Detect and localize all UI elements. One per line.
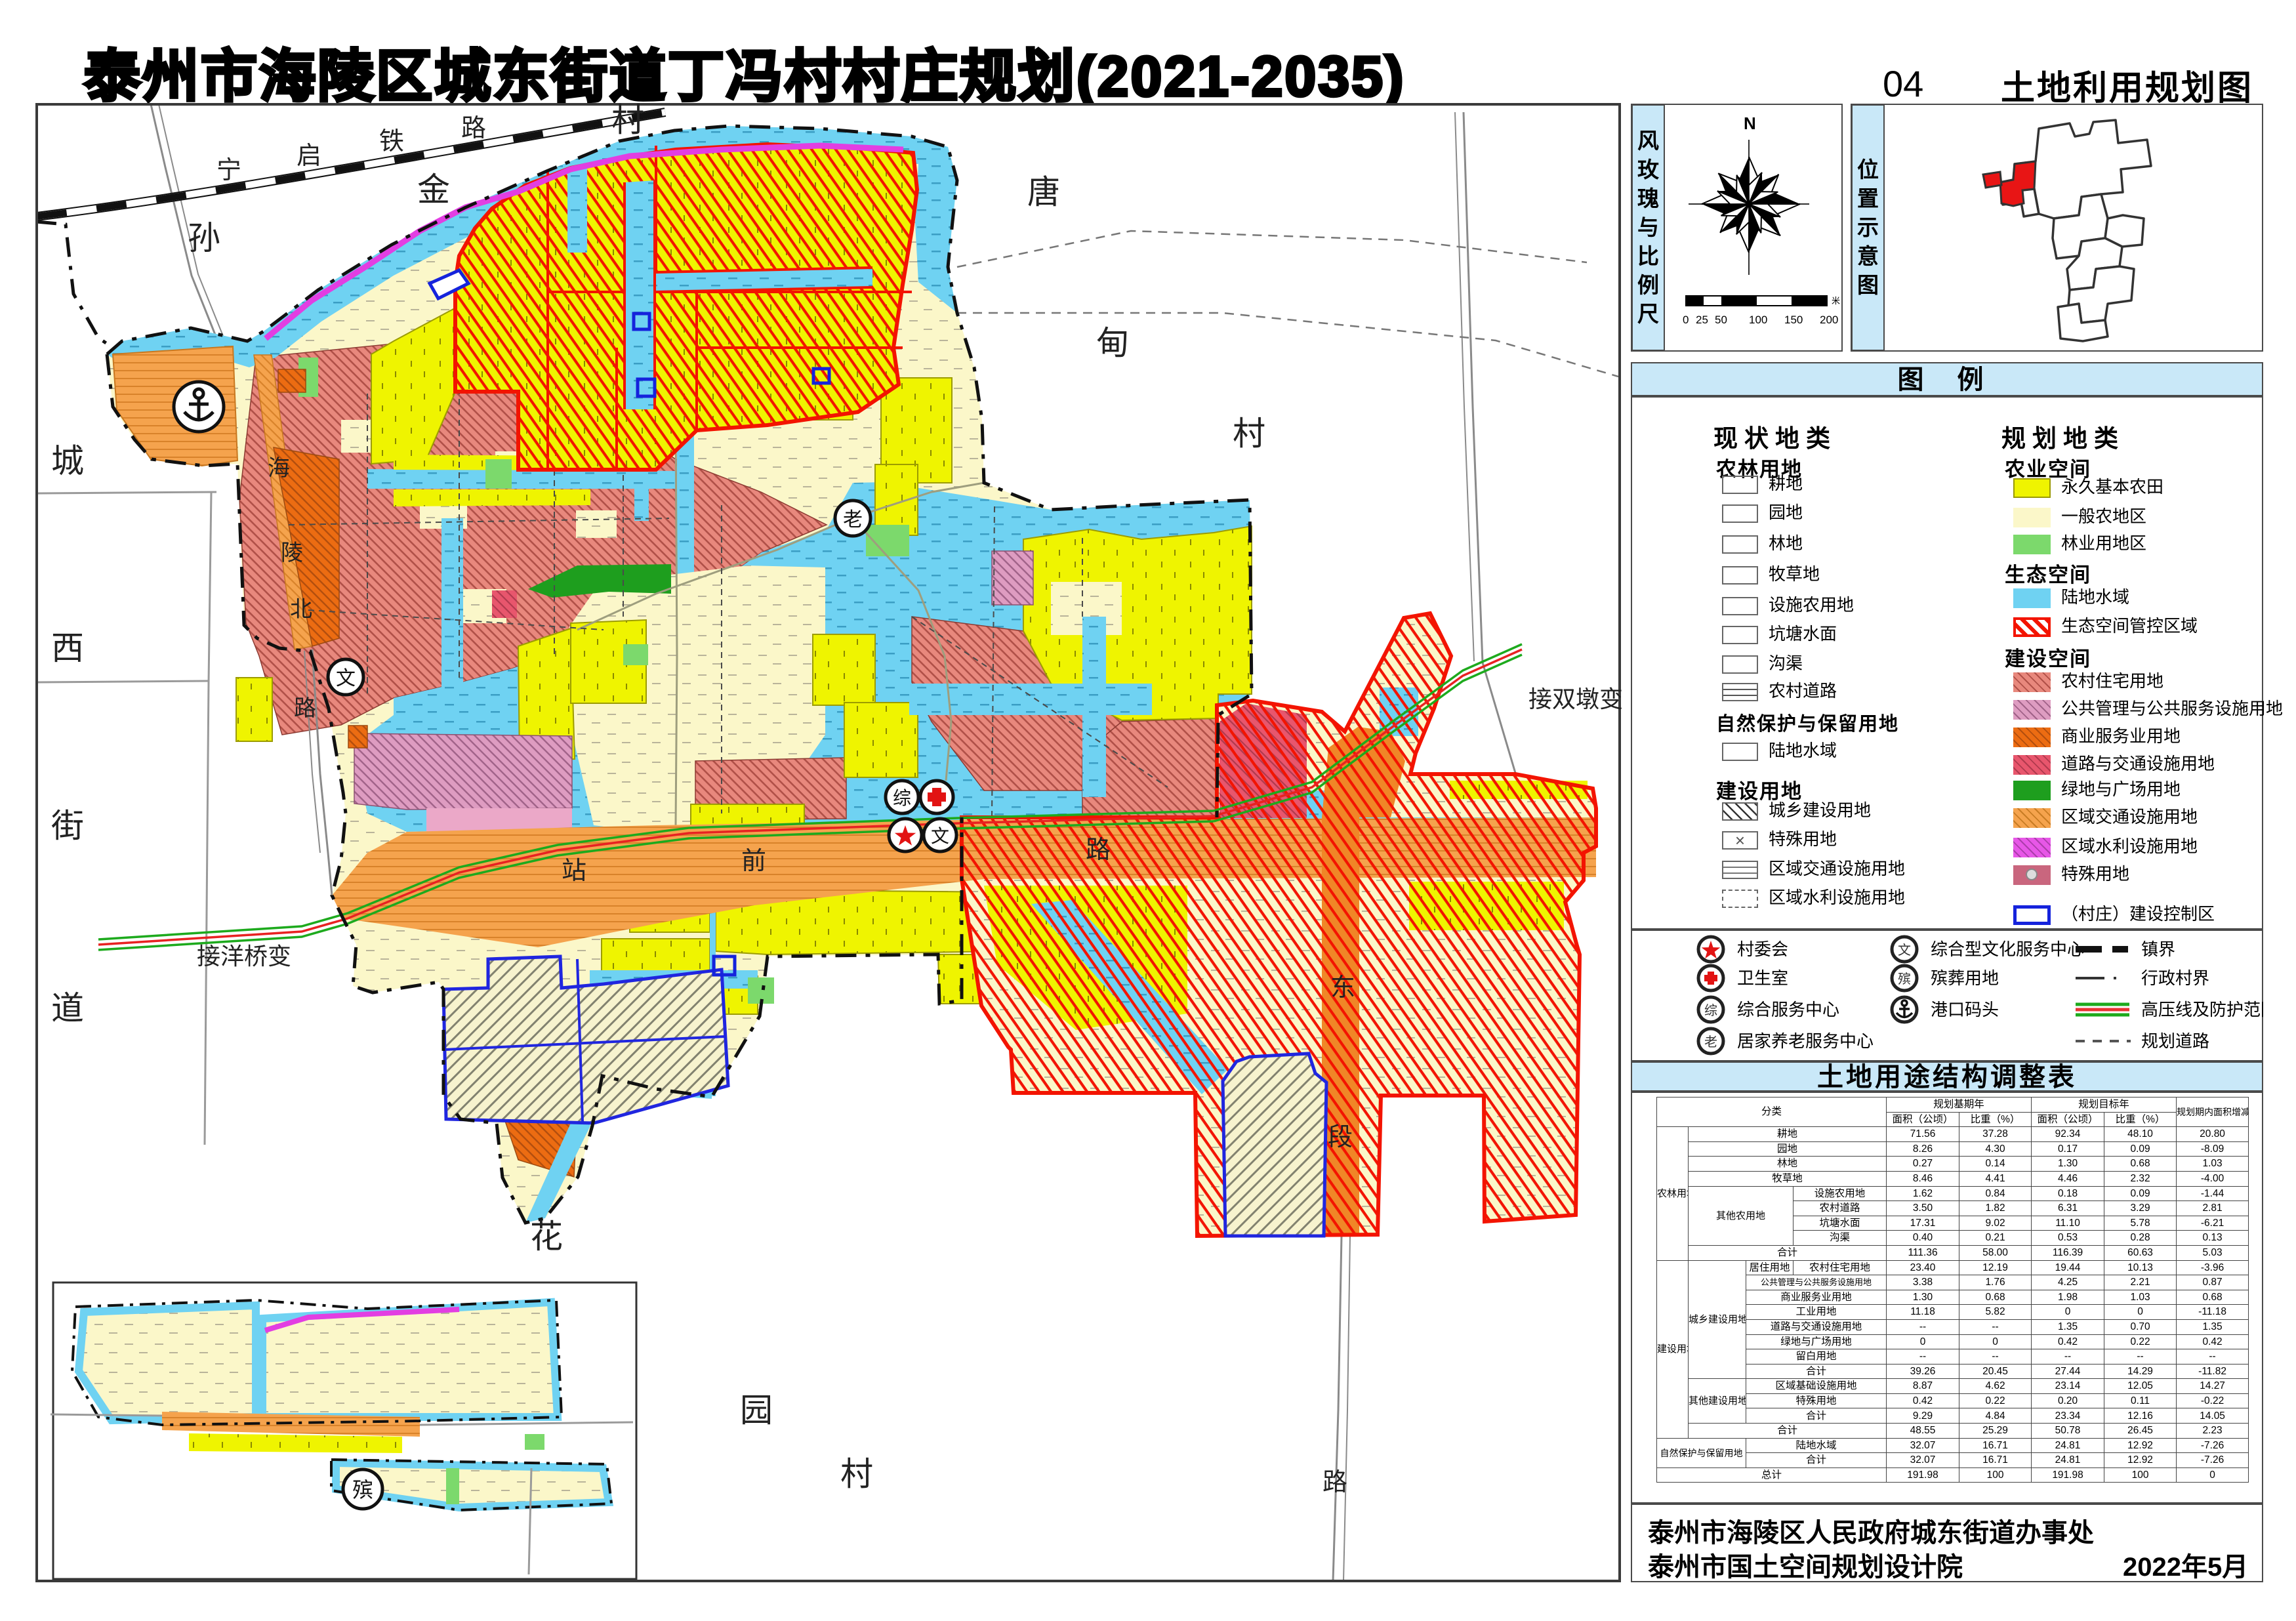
svg-text:道: 道: [51, 990, 84, 1027]
svg-text:港口码头: 港口码头: [1931, 1000, 1999, 1019]
svg-text:段: 段: [1328, 1124, 1353, 1151]
svg-text:城: 城: [51, 443, 84, 480]
svg-text:园: 园: [740, 1392, 773, 1429]
svg-text:前: 前: [741, 848, 766, 875]
svg-text:站: 站: [562, 857, 586, 885]
svg-text:镇界: 镇界: [2141, 939, 2175, 959]
svg-text:路: 路: [461, 115, 486, 142]
svg-text:街: 街: [51, 808, 84, 844]
svg-text:文: 文: [336, 668, 356, 689]
svg-text:殡: 殡: [352, 1478, 373, 1502]
svg-text:接双墩变: 接双墩变: [1528, 686, 1623, 712]
svg-text:100: 100: [1749, 314, 1767, 326]
svg-text:N: N: [1744, 113, 1756, 133]
svg-text:文: 文: [1898, 943, 1911, 958]
svg-text:花: 花: [530, 1218, 563, 1255]
svg-text:金: 金: [417, 171, 450, 208]
svg-text:老: 老: [843, 509, 863, 531]
svg-text:50: 50: [1715, 314, 1727, 326]
svg-text:路: 路: [1322, 1469, 1347, 1496]
svg-text:唐: 唐: [1027, 174, 1060, 211]
svg-text:综合型文化服务中心: 综合型文化服务中心: [1931, 939, 2084, 959]
svg-text:东: 东: [1330, 974, 1355, 1002]
svg-text:25: 25: [1696, 314, 1708, 326]
svg-text:高压线及防护范围: 高压线及防护范围: [2141, 1000, 2263, 1019]
svg-text:综: 综: [893, 788, 911, 808]
svg-text:甸: 甸: [1096, 325, 1129, 361]
svg-text:路: 路: [294, 696, 316, 721]
svg-text:接洋桥变: 接洋桥变: [197, 943, 291, 970]
svg-text:老: 老: [1704, 1035, 1717, 1050]
svg-text:启: 启: [297, 142, 321, 170]
svg-text:综合服务中心: 综合服务中心: [1737, 1000, 1839, 1019]
svg-text:宁: 宁: [216, 157, 241, 184]
svg-text:0: 0: [1683, 314, 1689, 326]
svg-text:海: 海: [268, 456, 290, 481]
svg-text:路: 路: [1086, 836, 1111, 864]
svg-text:200: 200: [1820, 314, 1838, 326]
svg-text:孙: 孙: [188, 220, 220, 256]
svg-text:规划道路: 规划道路: [2141, 1031, 2209, 1051]
svg-text:西: 西: [51, 630, 84, 667]
svg-text:综: 综: [1704, 1003, 1717, 1018]
svg-text:村: 村: [840, 1456, 873, 1492]
svg-text:北: 北: [290, 597, 312, 622]
svg-text:陵: 陵: [281, 541, 303, 565]
svg-text:行政村界: 行政村界: [2141, 968, 2209, 988]
svg-text:殡葬用地: 殡葬用地: [1931, 968, 1999, 988]
svg-text:文: 文: [931, 826, 949, 846]
svg-text:米: 米: [1832, 296, 1840, 306]
svg-text:150: 150: [1784, 314, 1803, 326]
svg-text:村委会: 村委会: [1737, 939, 1788, 959]
svg-text:卫生室: 卫生室: [1737, 968, 1788, 988]
svg-text:铁: 铁: [379, 128, 404, 155]
svg-text:村: 村: [1233, 415, 1265, 452]
svg-text:殡: 殡: [1898, 972, 1911, 987]
svg-text:居家养老服务中心: 居家养老服务中心: [1737, 1031, 1874, 1051]
svg-text:村: 村: [611, 102, 644, 138]
